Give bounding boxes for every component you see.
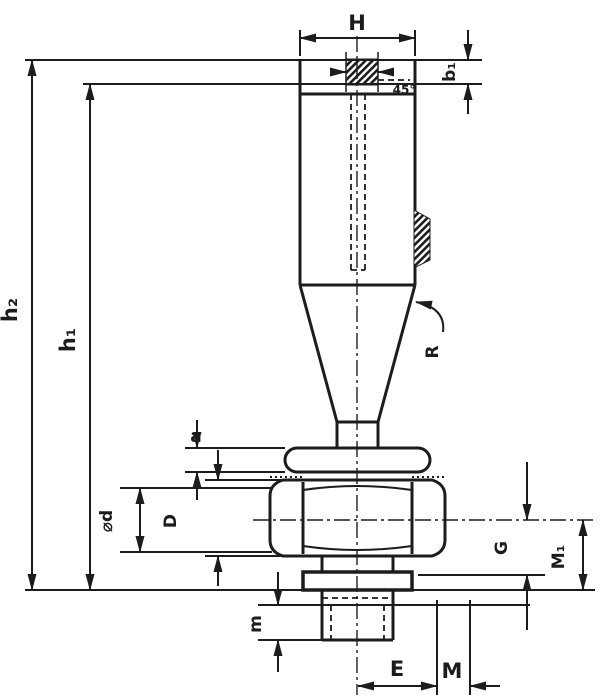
taper-left (300, 285, 337, 422)
dim-label-M1: M₁ (549, 545, 569, 569)
dim-label-h1: h₁ (56, 328, 80, 352)
dim-label-G: G (492, 541, 512, 555)
dim-label-R: R (423, 345, 443, 358)
dim-label-45deg: 45° (393, 83, 416, 97)
taper-right (378, 285, 415, 422)
centerlines (253, 36, 593, 695)
dim-label-E: E (390, 657, 404, 681)
dim-label-b1: b₁ (440, 62, 460, 82)
dim-label-M: M (442, 659, 463, 683)
dim-label-a: a (190, 427, 201, 447)
technical-drawing-canvas: H b₁ h₂ h₁ R 45° a ⌀d D G M₁ m E M (0, 0, 600, 700)
dim-label-phid: ⌀d (97, 510, 117, 532)
extension-lines (25, 30, 595, 695)
leader-R (416, 302, 443, 332)
dim-label-H: H (348, 11, 366, 35)
knurl-patch-side (414, 210, 430, 268)
dimension-drawing: H b₁ h₂ h₁ R 45° a ⌀d D G M₁ m E M (0, 0, 600, 700)
knurl-patch-crown (346, 59, 378, 85)
dim-label-h2: h₂ (0, 298, 22, 322)
dimension-lines (32, 30, 583, 686)
dim-label-D: D (161, 514, 181, 528)
dim-label-m: m (246, 615, 266, 633)
